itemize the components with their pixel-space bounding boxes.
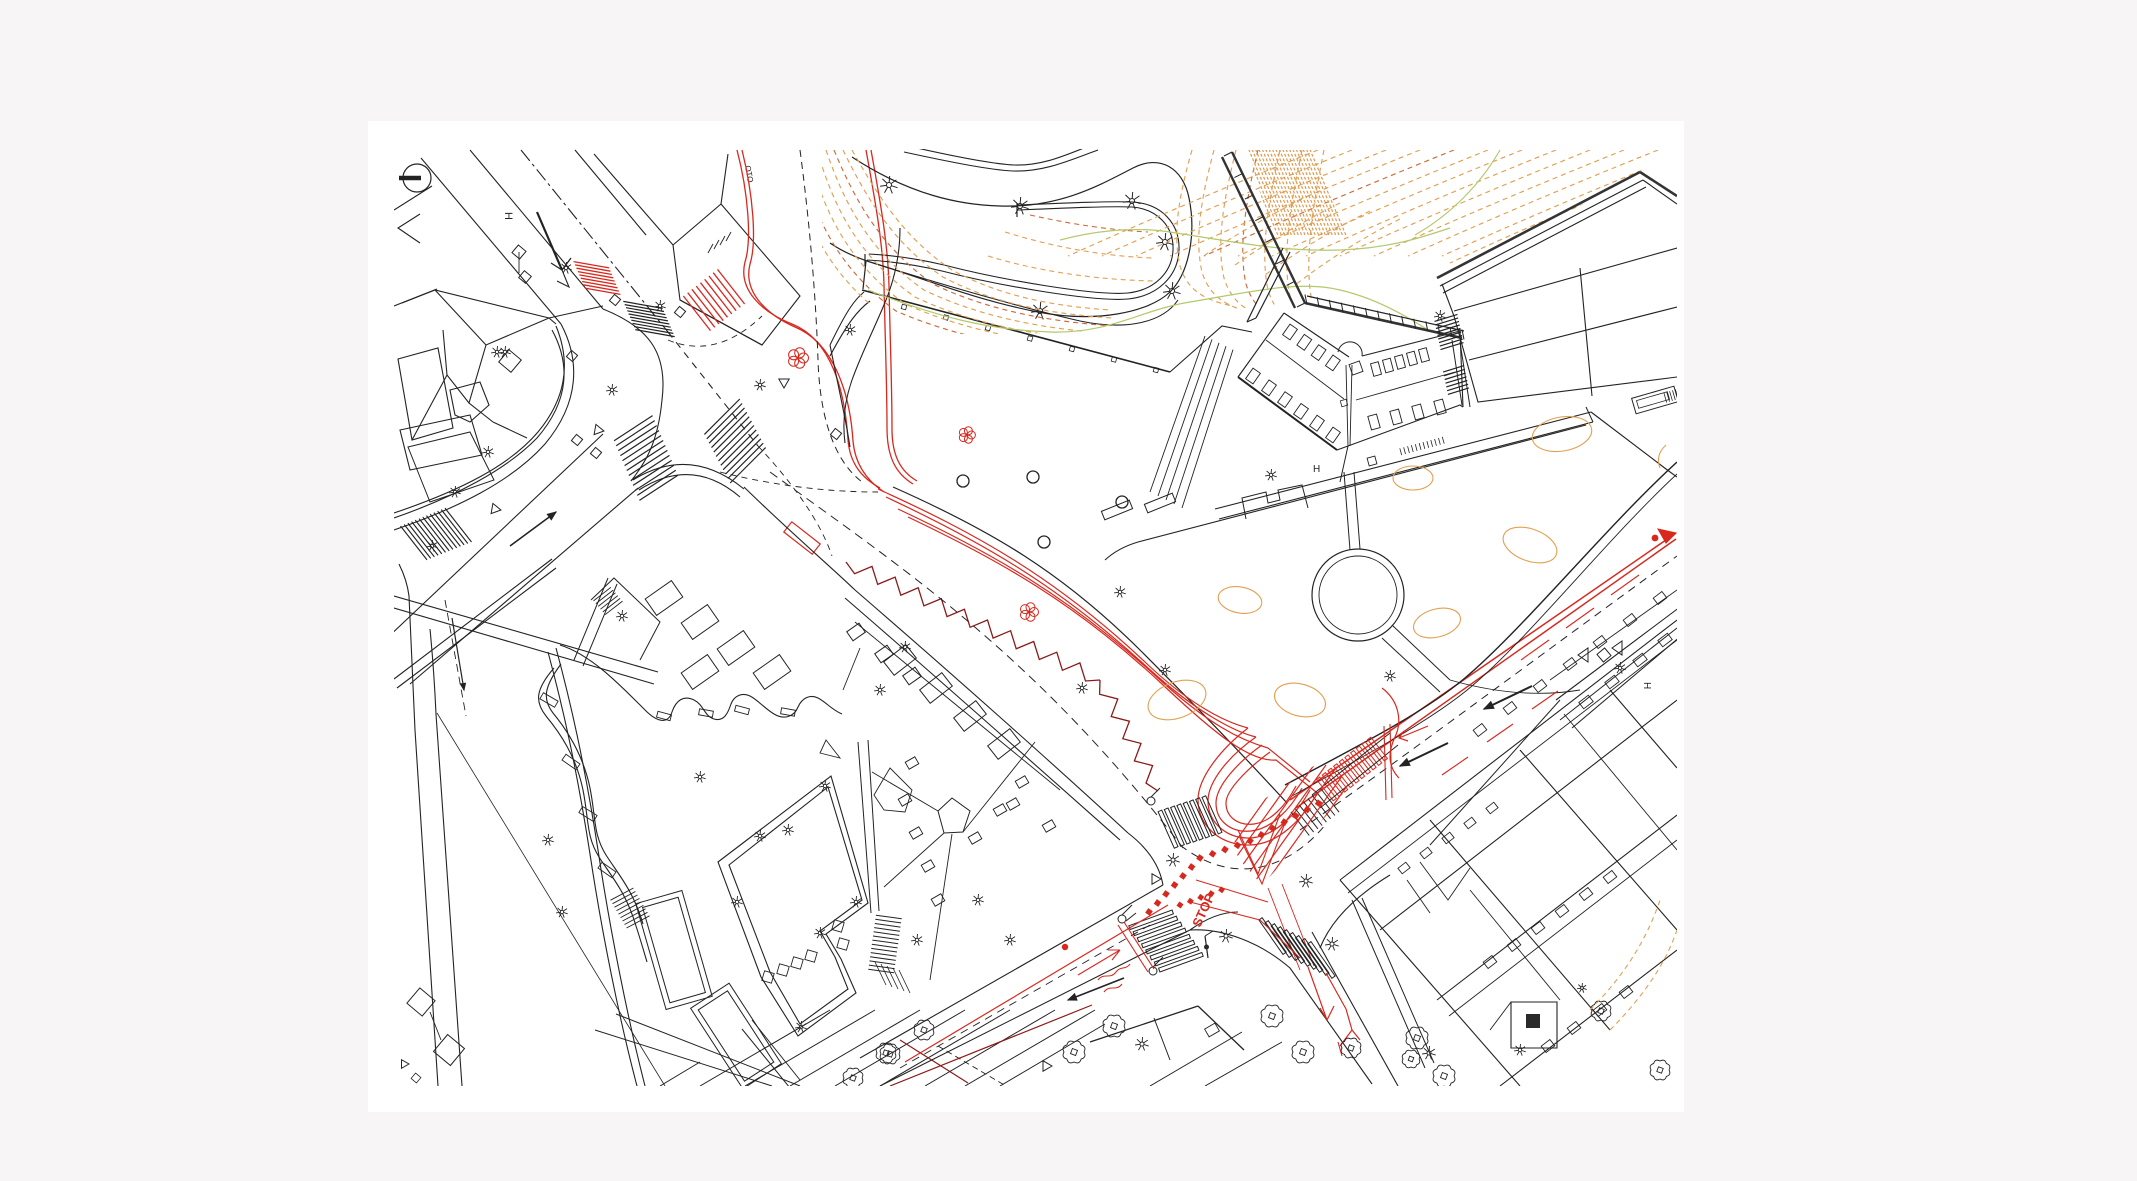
svg-text:H: H xyxy=(1313,464,1320,475)
svg-text:H: H xyxy=(502,212,514,220)
svg-text:H: H xyxy=(1641,682,1652,689)
